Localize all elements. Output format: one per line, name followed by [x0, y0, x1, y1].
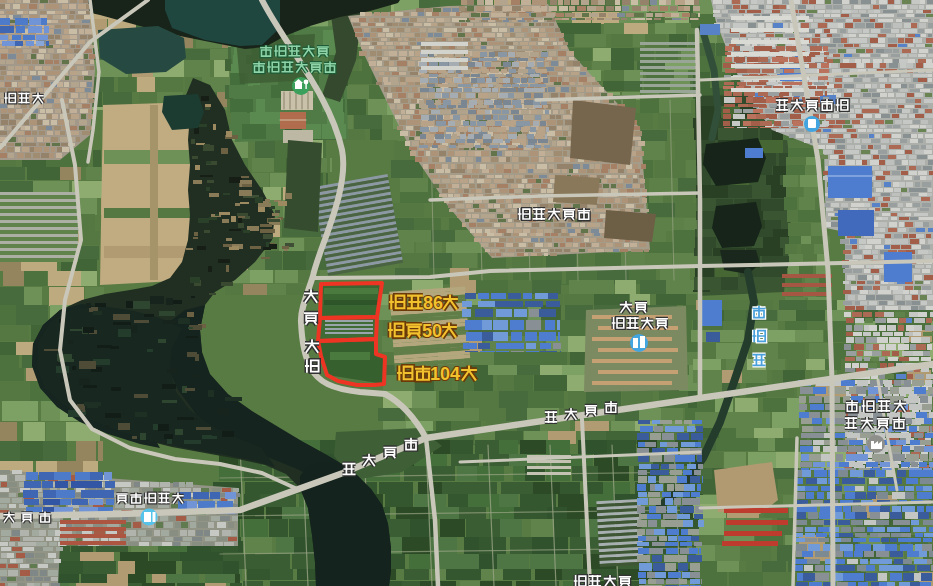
svg-text:104: 104: [430, 364, 460, 384]
svg-text:86: 86: [423, 293, 443, 313]
svg-text:50: 50: [422, 321, 442, 341]
